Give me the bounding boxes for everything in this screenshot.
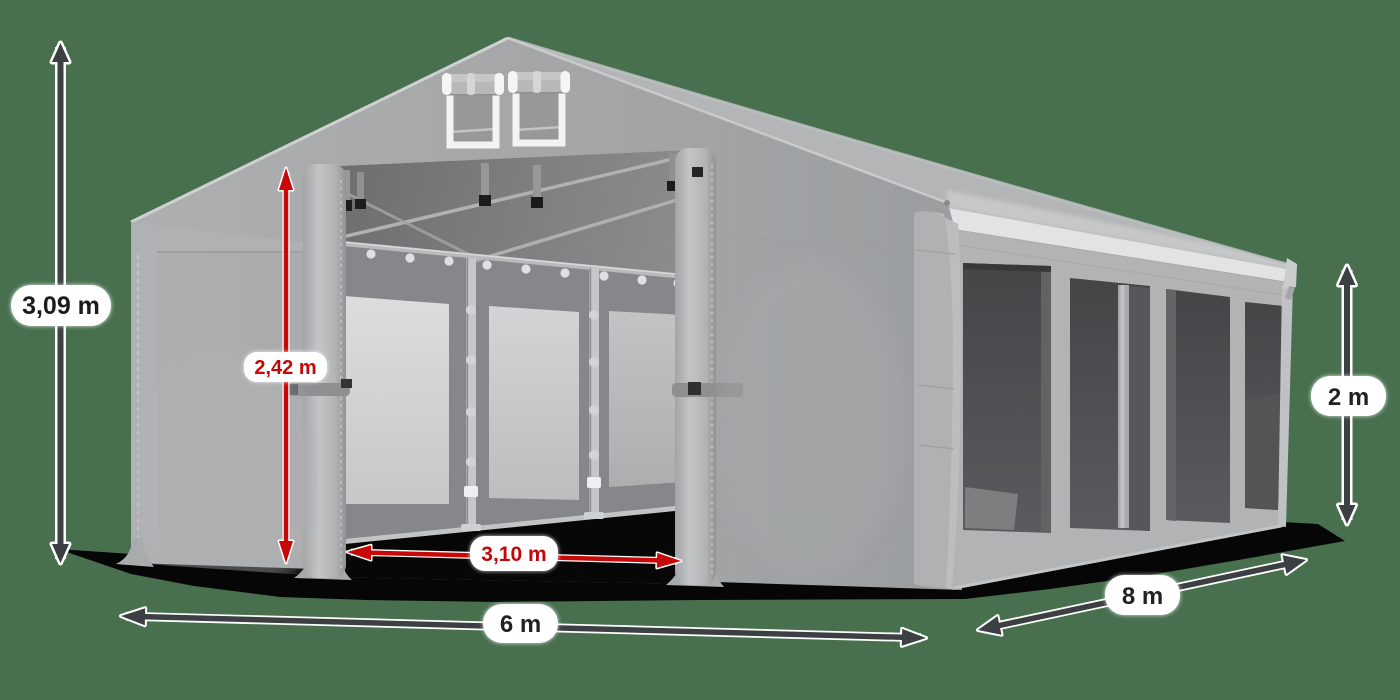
- svg-text:6 m: 6 m: [500, 611, 541, 638]
- svg-text:2,42 m: 2,42 m: [254, 357, 316, 379]
- svg-text:8 m: 8 m: [1122, 583, 1163, 610]
- svg-text:3,09 m: 3,09 m: [22, 292, 100, 320]
- svg-text:3,10 m: 3,10 m: [481, 543, 546, 566]
- svg-text:2 m: 2 m: [1328, 384, 1369, 411]
